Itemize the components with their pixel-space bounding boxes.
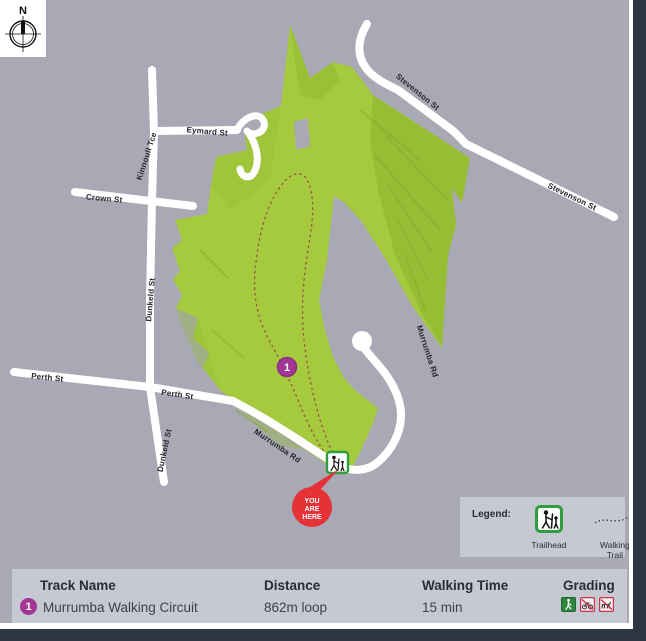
track-name-value: Murrumba Walking Circuit bbox=[43, 600, 198, 615]
frame-right bbox=[633, 0, 646, 641]
no-dogs-icon bbox=[599, 597, 614, 617]
road-culdesac bbox=[352, 331, 372, 351]
trail-number-label: 1 bbox=[284, 362, 290, 374]
col-header-grading: Grading bbox=[563, 578, 615, 593]
trailhead-icon bbox=[327, 452, 348, 473]
compass-north-label: N bbox=[19, 5, 27, 17]
you-are-here-line2: ARE bbox=[305, 506, 320, 513]
compass-rose: N bbox=[0, 0, 46, 57]
trailhead-icon bbox=[535, 505, 563, 538]
frame-bottom bbox=[0, 629, 646, 641]
track-info-table: Track Name Distance Walking Time Grading… bbox=[12, 569, 627, 623]
distance-value: 862m loop bbox=[264, 600, 327, 615]
park-notch bbox=[294, 118, 310, 150]
grading-icons bbox=[561, 597, 614, 617]
legend-item-trailhead: Trailhead bbox=[525, 505, 573, 551]
col-header-distance: Distance bbox=[264, 578, 320, 593]
walker-icon bbox=[561, 597, 576, 617]
street-label-stevenson-lower: Stevenson St bbox=[546, 181, 598, 212]
you-are-here-line3: HERE bbox=[302, 514, 322, 521]
no-bikes-icon bbox=[580, 597, 595, 617]
trail-map-page: Eymard St Kinnoull Tce Crown St Dunkeld … bbox=[0, 0, 646, 641]
legend-item-label: Trailhead bbox=[525, 541, 573, 551]
walking-time-value: 15 min bbox=[422, 600, 463, 615]
you-are-here-marker: YOU ARE HERE bbox=[292, 469, 339, 527]
street-label-dunkeld-upper: Dunkeld St bbox=[144, 277, 157, 322]
trail-number-marker: 1 bbox=[278, 358, 297, 377]
col-header-walking-time: Walking Time bbox=[422, 578, 508, 593]
legend: Legend: bbox=[460, 497, 625, 557]
track-number-badge: 1 bbox=[20, 598, 37, 615]
col-header-track-name: Track Name bbox=[40, 578, 116, 593]
you-are-here-line1: YOU bbox=[304, 498, 319, 505]
street-label-crown: Crown St bbox=[86, 192, 123, 204]
legend-title: Legend: bbox=[472, 509, 511, 520]
